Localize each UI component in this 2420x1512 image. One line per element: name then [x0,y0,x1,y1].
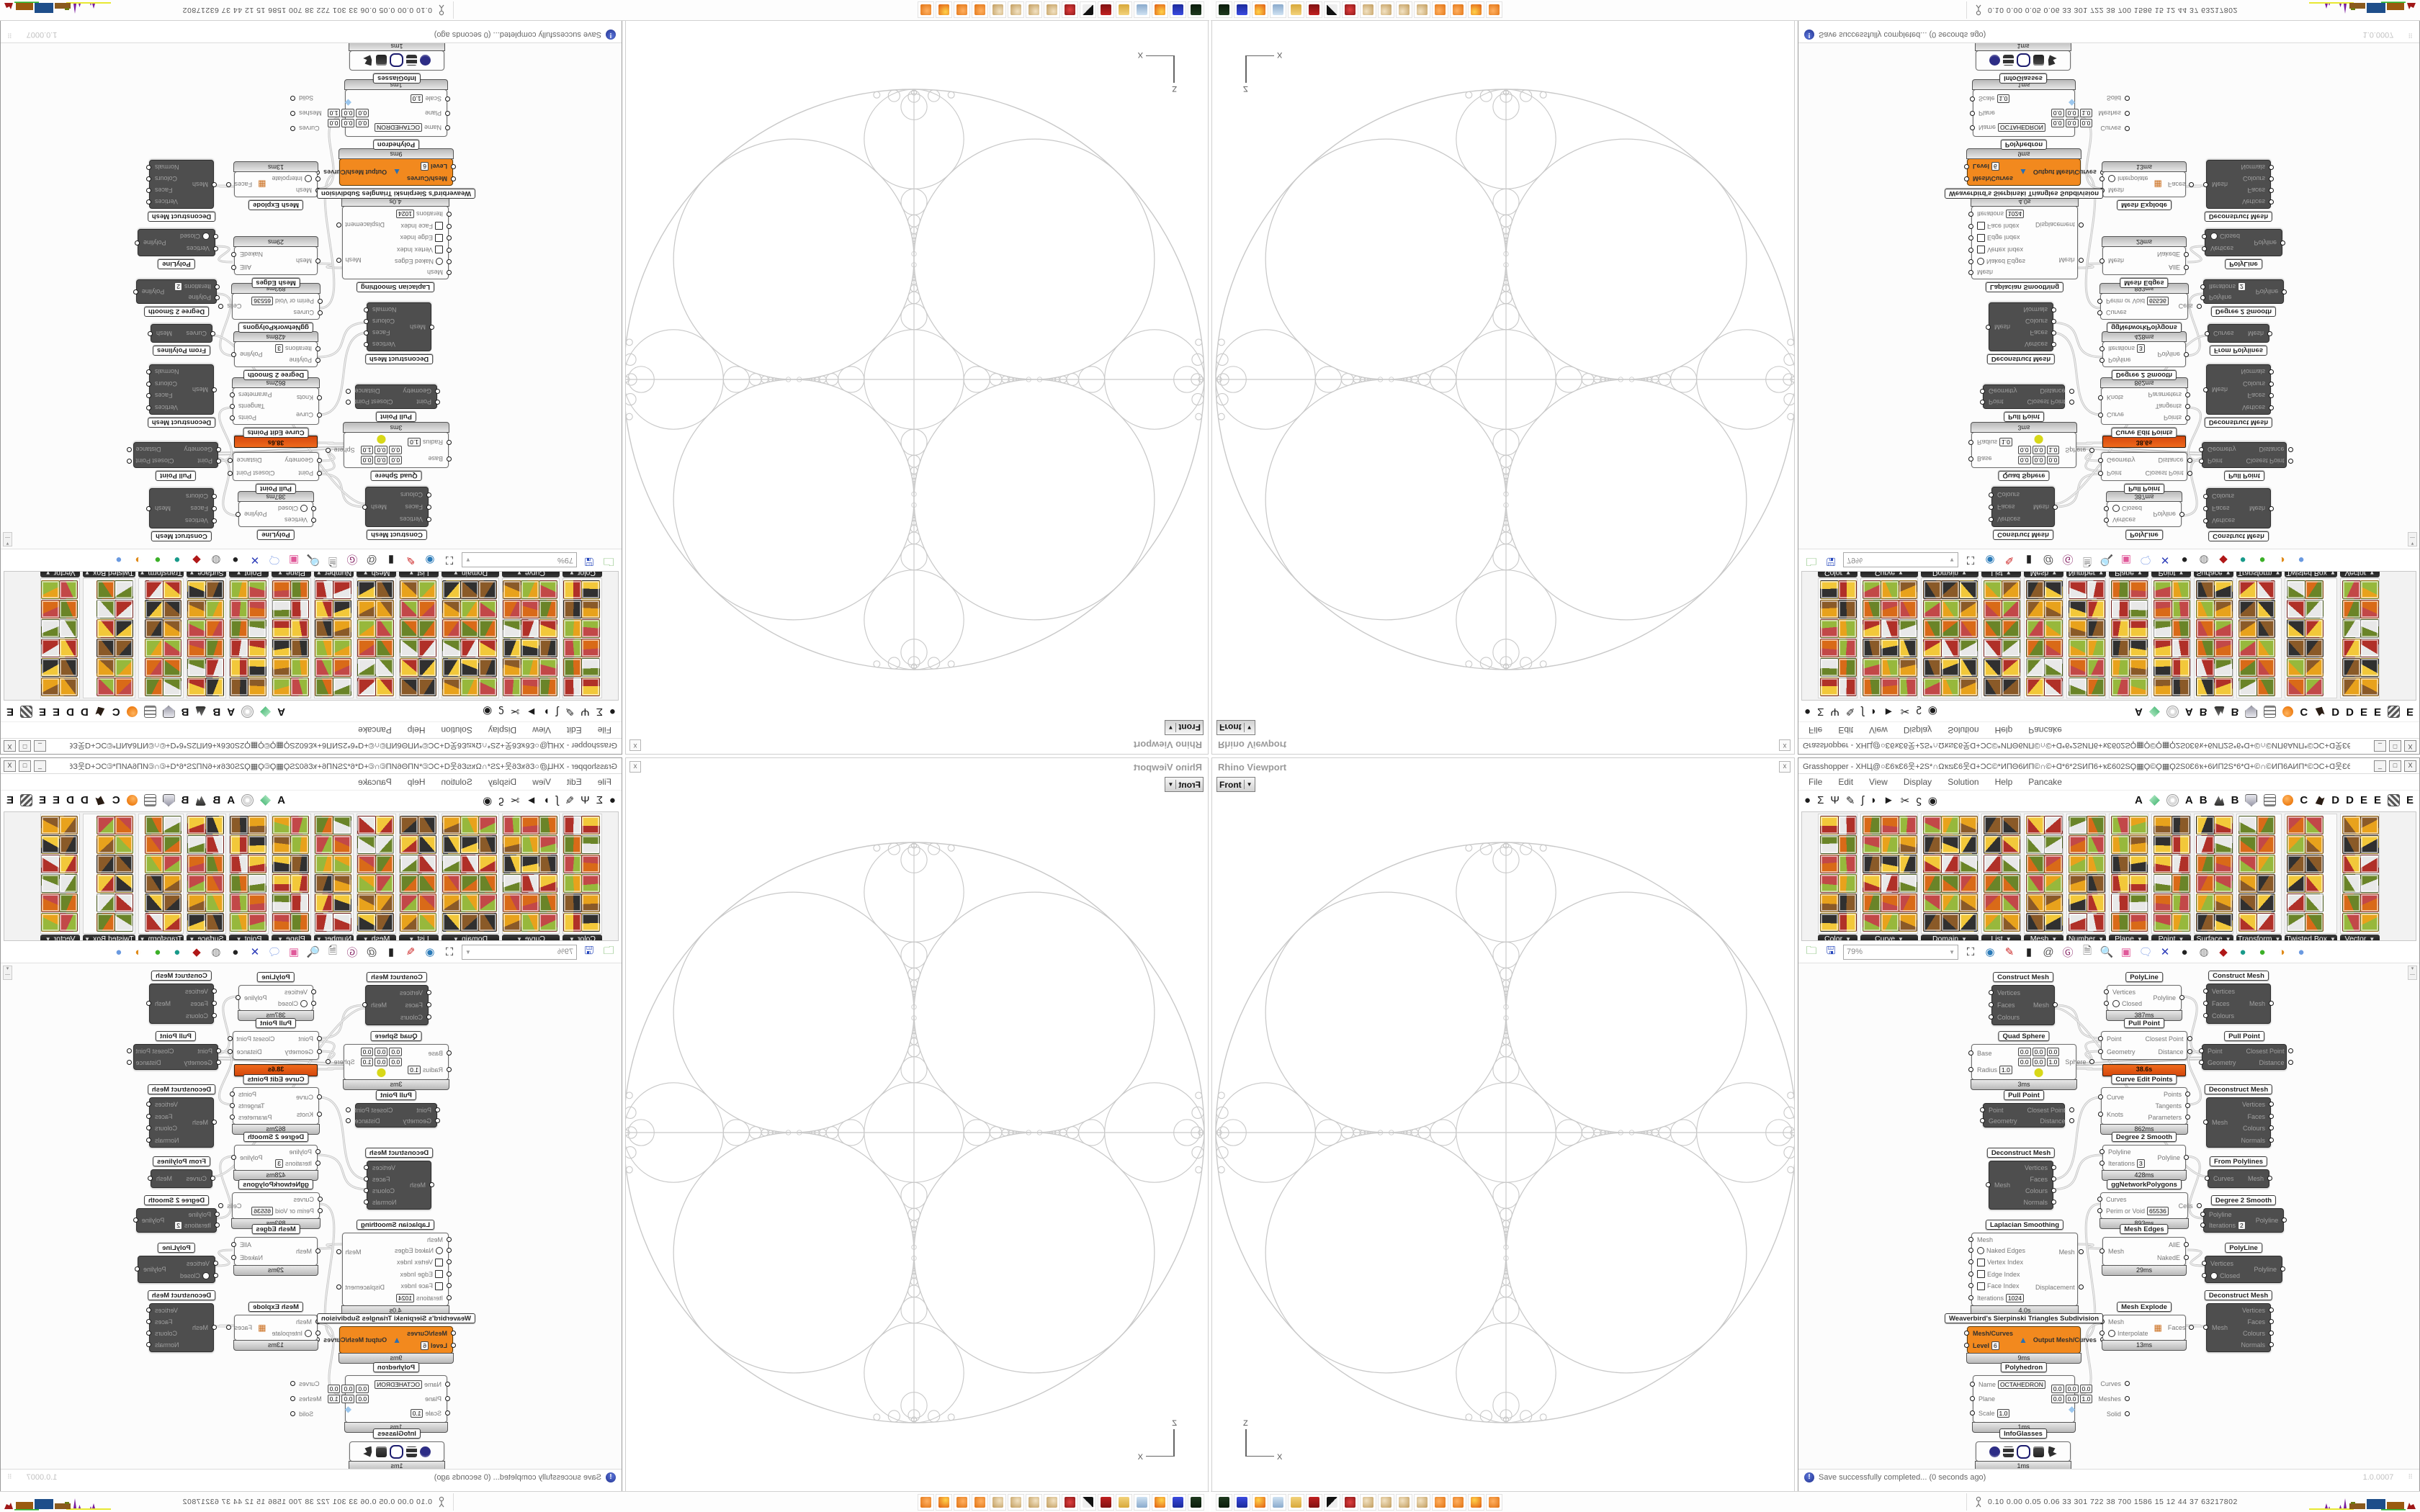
gh-component[interactable]: From Polylines CurvesMesh [151,1169,212,1188]
component-icon[interactable] [2087,658,2105,677]
output-port-row[interactable]: Mesh [2028,503,2054,510]
tab-E[interactable]: E [6,794,14,806]
component-icon[interactable] [333,619,351,638]
component-icon[interactable] [2238,874,2257,893]
component-icon[interactable] [290,913,309,932]
input-port-row[interactable]: Curves [181,330,212,337]
component-icon[interactable] [163,619,181,638]
output-port-row[interactable]: Displacement [2030,222,2080,229]
tab-D[interactable]: D [2331,706,2339,718]
maximize-button[interactable]: □ [2389,740,2401,752]
component-icon[interactable] [2342,600,2361,618]
input-port-row[interactable]: Scale1.0 [369,94,447,103]
taskbar-app-video-v-icon[interactable] [1324,1,1340,18]
taskbar-app-firefox-icon[interactable] [936,1,952,18]
component-icon[interactable] [59,835,78,854]
component-icon[interactable] [2087,619,2105,638]
component-icon[interactable] [2026,816,2045,834]
value-chip[interactable]: 0.0 [375,456,388,464]
component-icon[interactable] [2305,678,2323,696]
taskbar-app-firefox-icon[interactable] [1252,1494,1268,1511]
value-chip[interactable]: OCTAHEDRON [375,1380,422,1389]
component-icon[interactable] [2214,855,2233,873]
gh-component[interactable]: PolyLine VerticesClosedPolyline 387ms [2107,501,2182,527]
output-port-row[interactable]: Vertices [2236,198,2270,205]
input-port-row[interactable]: Mesh [2103,186,2154,194]
half-sphere-icon[interactable]: ◑ [2275,553,2289,567]
input-port-row[interactable]: Base [1972,1050,2017,1057]
gha-loader-icon[interactable]: Ⓖ [345,945,359,959]
value-chip[interactable]: 1.0 [1997,94,2010,103]
output-port-row[interactable]: Vertices [2236,404,2270,411]
component-icon[interactable] [2111,619,2130,638]
taskbar-app-palette-icon[interactable] [1414,1,1430,18]
component-icon[interactable] [2342,619,2361,638]
component-icon[interactable] [1959,580,1978,599]
archive-icon[interactable] [2033,1446,2044,1457]
component-icon[interactable] [2238,639,2257,657]
component-icon[interactable] [2360,855,2379,873]
blue-sphere-icon[interactable]: ● [2294,945,2308,959]
component-icon[interactable] [2129,874,2148,893]
taskbar-app-floppy-64-icon[interactable] [1234,1494,1250,1511]
value-chip[interactable]: 1.0 [1999,1066,2012,1074]
taskbar-app-palette-icon[interactable] [1044,1,1060,18]
input-port-row[interactable]: Closed [2205,1272,2245,1279]
toggle-circle[interactable] [2112,505,2120,512]
blob-icon[interactable]: ● [1804,794,1811,806]
value-chip[interactable]: 2 [174,282,182,291]
component-icon[interactable] [115,678,133,696]
value-chip[interactable]: 0.0 [389,446,402,454]
value-chip[interactable]: 1.0 [1999,438,2012,446]
ribbon-group-label[interactable]: Curve▼ [502,935,560,941]
component-icon[interactable] [521,816,539,834]
component-icon[interactable] [1838,619,1857,638]
component-icon[interactable] [2238,658,2257,677]
output-port-row[interactable]: Parameters [2143,1114,2187,1121]
value-chip[interactable]: 1.0 [411,94,423,103]
sigma-icon[interactable]: Σ [1817,706,1824,718]
component-icon[interactable] [248,894,266,912]
cross-wires-icon[interactable]: ✕ [2158,945,2172,959]
ribbon-group-label[interactable]: List▼ [1981,935,2021,941]
component-icon[interactable] [187,619,206,638]
component-icon[interactable] [2111,600,2130,618]
component-icon[interactable] [1941,913,1960,932]
preview-mesh-icon[interactable]: ▮ [384,945,398,959]
output-port-row[interactable]: Displacement [2030,1284,2080,1291]
component-icon[interactable] [2257,639,2275,657]
component-icon[interactable] [503,913,521,932]
resize-grip[interactable]: ⠿ [6,31,12,39]
ribbon-group-label[interactable]: Surface▼ [187,571,226,577]
output-port-row[interactable]: NakedE [2152,251,2185,258]
output-port-row[interactable]: Colours [2236,175,2270,182]
canvas-scroll-nub[interactable]: ▾— [3,532,12,546]
input-port-row[interactable]: Plane [369,109,447,117]
value-chip[interactable]: 1.0 [408,438,421,446]
output-port-row[interactable]: Colours [2236,1125,2270,1132]
ribbon-group-label[interactable]: Color▼ [1818,935,1857,941]
component-icon[interactable] [205,816,224,834]
component-icon[interactable] [357,913,376,932]
mountain-icon[interactable] [195,706,206,717]
component-icon[interactable] [1899,894,1917,912]
input-port-row[interactable]: Vertices [273,516,313,523]
toggle-circle[interactable] [2108,1330,2115,1337]
component-icon[interactable] [2172,894,2190,912]
gh-component[interactable]: Pull Point PointGeometryClosest PointDis… [1983,1103,2065,1128]
input-port-row[interactable]: Geometry [2202,1059,2241,1066]
menu-item-view[interactable]: View [1869,725,1888,735]
component-icon[interactable] [521,855,539,873]
taskbar-app-blender-icon[interactable] [1450,1,1466,18]
value-chip[interactable]: 0.0 [2018,456,2031,464]
component-icon[interactable] [581,913,600,932]
component-icon[interactable] [2305,580,2323,599]
zoom-level-dropdown[interactable]: 79% ▼ [1843,553,1958,568]
component-icon[interactable] [59,678,78,696]
output-port-row[interactable]: Vertices [2018,341,2053,348]
spiral-icon[interactable]: ϛ [1916,706,1922,718]
preview-eye-icon[interactable]: ◉ [1983,553,1997,567]
gh-component[interactable]: Curve Edit Points CurveKnotsPointsTangen… [233,1087,319,1125]
viewport-canvas[interactable] [1212,21,1794,754]
value-chip[interactable]: 0.0 [328,119,341,127]
close-button[interactable]: X [4,760,16,772]
component-icon[interactable] [41,580,60,599]
ribbon-group-label[interactable]: List▼ [399,935,439,941]
goggles-icon[interactable] [390,1445,404,1459]
component-icon[interactable] [1984,678,2002,696]
component-icon[interactable] [2305,816,2323,834]
component-icon[interactable] [41,639,60,657]
component-icon[interactable] [1820,835,1839,854]
menu-item-display[interactable]: Display [1904,777,1932,787]
component-icon[interactable] [539,816,557,834]
gh-component[interactable]: Curve Edit Points CurveKnotsPointsTangen… [2101,1087,2187,1125]
component-icon[interactable] [2342,639,2361,657]
component-icon[interactable] [59,874,78,893]
output-port-row[interactable]: Distance [231,456,279,464]
component-icon[interactable] [1820,913,1839,932]
shield-icon[interactable] [2245,706,2257,718]
component-icon[interactable] [503,580,521,599]
input-port-row[interactable]: Mesh [2103,257,2129,264]
toggle-square[interactable] [1977,246,1985,253]
output-port-row[interactable]: Output Mesh/Curves [2028,168,2102,176]
taskbar-app-video-v-icon[interactable] [1324,1494,1340,1511]
menu-item-solution[interactable]: Solution [1948,777,1978,787]
teal-sphere-icon[interactable]: ● [2236,553,2250,567]
component-icon[interactable] [205,855,224,873]
component-icon[interactable] [442,639,461,657]
component-icon[interactable] [2154,816,2172,834]
output-port-row[interactable]: Normals [2236,368,2270,375]
value-chip[interactable]: 1.0 [1997,1409,2010,1418]
component-icon[interactable] [1941,639,1960,657]
output-port-row[interactable]: Colours [150,175,184,182]
output-port-row[interactable]: Normals [2236,163,2270,171]
input-port-row[interactable]: Vertices [273,989,313,996]
input-port-row[interactable]: Geometry [179,1059,218,1066]
component-icon[interactable] [2257,580,2275,599]
glasses-mode-icon[interactable] [1989,55,2000,66]
grasshopper-canvas[interactable]: ▾— Construct Mesh VerticesFacesColoursMe… [1798,42,2419,549]
component-icon[interactable] [1941,619,1960,638]
input-port-row[interactable]: Iterations3 [2103,345,2150,354]
taskbar-app-blender-icon[interactable] [1432,1494,1448,1511]
component-icon[interactable] [230,658,248,677]
component-icon[interactable] [460,619,479,638]
component-icon[interactable] [1923,678,1942,696]
component-icon[interactable] [418,874,436,893]
input-port-row[interactable]: Face Index [1972,222,2030,230]
taskbar-app-firefox-icon[interactable] [1152,1,1168,18]
value-chip[interactable]: 0.0 [389,1058,402,1066]
gh-component[interactable]: Construct Mesh VerticesFacesColoursMesh [149,984,214,1024]
component-icon[interactable] [442,816,461,834]
input-port-row[interactable]: Mesh/Curves [1968,175,2018,182]
component-icon[interactable] [539,600,557,618]
blue-sphere-icon[interactable]: ● [112,553,126,567]
component-icon[interactable] [1941,894,1960,912]
input-port-row[interactable]: Scale1.0 [1973,94,2051,103]
menu-item-file[interactable]: File [598,725,611,735]
menu-item-display[interactable]: Display [1904,725,1932,735]
component-icon[interactable] [2196,894,2215,912]
input-port-row[interactable]: Face Index [390,1282,448,1290]
menu-item-edit[interactable]: Edit [1838,777,1853,787]
input-port-row[interactable]: Mesh [266,186,317,194]
component-icon[interactable] [563,600,582,618]
component-icon[interactable] [145,913,163,932]
component-icon[interactable] [2044,639,2063,657]
component-icon[interactable] [563,855,582,873]
menu-item-help[interactable]: Help [1995,777,2013,787]
component-icon[interactable] [1838,913,1857,932]
component-icon[interactable] [2305,658,2323,677]
component-icon[interactable] [115,580,133,599]
ribbon-group-label[interactable]: Twisted Box▼ [2285,935,2337,941]
output-port-row[interactable]: Vertices [2236,1307,2270,1314]
component-icon[interactable] [581,600,600,618]
green-sphere-icon[interactable]: ● [151,553,165,567]
component-icon[interactable] [2069,639,2087,657]
output-port-row[interactable]: Meshes [294,1395,327,1403]
component-icon[interactable] [315,913,333,932]
component-icon[interactable] [1820,894,1839,912]
input-port-row[interactable]: Mesh [266,1318,317,1326]
input-port-row[interactable]: Point [2202,457,2241,464]
minimize-button[interactable]: _ [2374,760,2386,772]
input-port-row[interactable]: Polyline [2103,357,2150,364]
input-port-row[interactable]: Faces [180,1000,213,1007]
input-port-row[interactable]: Colours [395,1014,428,1021]
component-icon[interactable] [2002,835,2020,854]
gh-component[interactable]: Quad Sphere BaseRadius1.00.00.00.00.00.0… [1971,1044,2076,1080]
component-icon[interactable] [539,913,557,932]
input-port-row[interactable]: Faces [395,503,428,510]
component-icon[interactable] [2129,678,2148,696]
component-icon[interactable] [1863,678,1881,696]
grasshopper-titlebar[interactable]: Grasshopper - XHЦ@○Ɛ6ҡƐ6웃+2S*∩Ωҡ⧅Ɛ6웃Ɑ+ƆC… [1,758,622,774]
tab-A[interactable]: A [227,794,235,806]
output-port-row[interactable]: Colours [2236,1330,2270,1337]
output-port-row[interactable]: Closest Point [130,1048,179,1055]
ribbon-group-label[interactable]: Plane▼ [2109,571,2148,577]
output-port-row[interactable]: Vertices [150,198,184,205]
input-port-row[interactable]: Plane [1973,109,2051,117]
input-port-row[interactable]: Faces [2207,1000,2240,1007]
input-port-row[interactable]: NameOCTAHEDRON [1973,123,2051,132]
ribbon-group-label[interactable]: Curve▼ [1860,935,1918,941]
component-icon[interactable] [272,619,291,638]
input-port-row[interactable]: NameOCTAHEDRON [369,1380,447,1389]
component-icon[interactable] [521,580,539,599]
shield-icon[interactable] [2245,794,2257,806]
value-chip[interactable]: 1.0 [2047,446,2060,454]
output-port-row[interactable]: Colours [367,1187,402,1194]
component-icon[interactable] [1881,816,1899,834]
save-file-icon[interactable]: 🖫 [1824,945,1838,959]
component-icon[interactable] [2069,874,2087,893]
input-port-row[interactable]: Vertices [180,517,213,524]
shaded-sphere-icon[interactable]: ● [2177,945,2192,959]
input-port-row[interactable]: Iterations2 [2204,1221,2251,1230]
plug-icon[interactable] [363,1446,374,1457]
component-icon[interactable] [1863,580,1881,599]
value-chip[interactable]: 0.0 [2033,446,2045,454]
component-icon[interactable] [1820,580,1839,599]
component-icon[interactable] [2002,639,2020,657]
component-icon[interactable] [478,678,497,696]
output-port-row[interactable]: Vertices [150,404,184,411]
close-icon[interactable]: x [1779,739,1791,751]
viewport-view-dropdown[interactable]: Front ▼ [1165,720,1204,735]
component-icon[interactable] [145,639,163,657]
grid-mode-icon[interactable] [407,1446,418,1457]
component-icon[interactable] [1899,913,1917,932]
input-port-row[interactable]: Vertex Index [1972,1259,2030,1266]
tab-E[interactable]: E [53,706,60,718]
component-icon[interactable] [418,816,436,834]
component-icon[interactable] [1984,855,2002,873]
script-doc-icon[interactable]: 🗎 [2080,945,2094,959]
resize-grip[interactable]: ⠿ [2408,31,2414,39]
component-icon[interactable] [460,913,479,932]
value-chip[interactable]: 0.0 [342,119,355,127]
preview-mesh-icon[interactable]: ▮ [2022,945,2036,959]
input-port-row[interactable]: Perim or Void65536 [2101,1207,2174,1215]
gh-component[interactable]: PolyLine VerticesClosedPolyline [138,1256,215,1283]
component-icon[interactable] [1923,894,1942,912]
ribbon-group-label[interactable]: List▼ [399,571,439,577]
component-icon[interactable] [97,639,115,657]
red-gem-icon[interactable]: ◆ [189,553,204,567]
component-icon[interactable] [2360,816,2379,834]
input-port-row[interactable]: Mesh [1989,323,2015,330]
taskbar-app-blender-icon[interactable] [954,1,970,18]
component-icon[interactable] [1959,639,1978,657]
component-icon[interactable] [563,894,582,912]
taskbar-app-firefox-icon[interactable] [1468,1,1484,18]
ribbon-group-label[interactable]: Vector▼ [40,571,80,577]
gh-component[interactable]: Degree 2 Smooth PolylineIterations3Polyl… [234,1145,318,1171]
component-icon[interactable] [400,894,418,912]
component-icon[interactable] [115,639,133,657]
gh-component[interactable]: Weaverbird's Sierpinski Triangles Subdiv… [339,158,453,186]
output-port-row[interactable]: Mesh [2244,505,2270,512]
taskbar-app-palette-icon[interactable] [1026,1494,1042,1511]
taskbar-app-floppy-64-icon[interactable] [1170,1494,1186,1511]
component-icon[interactable] [1899,658,1917,677]
component-icon[interactable] [357,580,376,599]
tab-A[interactable]: A [2135,794,2143,806]
close-button[interactable]: X [4,740,16,752]
output-port-row[interactable]: Polyline [2249,239,2282,246]
component-icon[interactable] [375,619,394,638]
component-icon[interactable] [581,639,600,657]
tab-E[interactable]: E [2406,706,2414,718]
input-port-row[interactable]: Polyline [2204,294,2251,301]
component-icon[interactable] [478,835,497,854]
toggle-circle[interactable] [202,1272,210,1279]
component-icon[interactable] [581,816,600,834]
component-icon[interactable] [1863,619,1881,638]
package-help-icon[interactable]: ▣ [287,945,301,959]
component-icon[interactable] [2172,913,2190,932]
ribbon-group-label[interactable]: Domain▼ [442,935,499,941]
open-file-icon[interactable]: 🗀 [601,553,616,567]
component-icon[interactable] [460,816,479,834]
input-port-row[interactable]: Mesh [390,1236,448,1243]
cross-wires-icon[interactable]: ✕ [2158,553,2172,567]
component-icon[interactable] [400,855,418,873]
component-icon[interactable] [478,816,497,834]
input-port-row[interactable]: Vertex Index [1972,246,2030,253]
component-icon[interactable] [163,678,181,696]
input-port-row[interactable]: Base [1972,455,2017,462]
gh-component[interactable]: Mesh Edges MeshAllENakedE 29ms [2102,1237,2186,1266]
component-icon[interactable] [1959,619,1978,638]
input-port-row[interactable]: Curves [2208,330,2239,337]
value-chip[interactable]: 0.0 [2066,1385,2079,1393]
value-chip[interactable]: 1024 [396,1294,414,1302]
component-icon[interactable] [2002,855,2020,873]
component-icon[interactable] [248,678,266,696]
value-chip[interactable]: 3 [275,345,283,354]
component-icon[interactable] [2342,678,2361,696]
input-port-row[interactable]: Vertices [2207,517,2240,524]
component-icon[interactable] [230,580,248,599]
gh-component[interactable]: InfoGlasses 1ms [349,1441,444,1462]
value-chip[interactable]: 0.0 [361,456,374,464]
psi-icon[interactable]: Ψ [1830,794,1839,806]
component-icon[interactable] [375,816,394,834]
component-icon[interactable] [272,580,291,599]
toggle-square[interactable] [1977,222,1985,230]
toggle-circle[interactable] [1977,258,1984,265]
taskbar-app-terminal-green-icon[interactable] [1188,1,1204,18]
component-icon[interactable] [59,816,78,834]
component-icon[interactable] [230,639,248,657]
value-chip[interactable]: 0.0 [375,1058,388,1066]
output-port-row[interactable]: Normals [2236,1137,2270,1144]
component-icon[interactable] [1941,855,1960,873]
menu-item-help[interactable]: Help [408,777,426,787]
